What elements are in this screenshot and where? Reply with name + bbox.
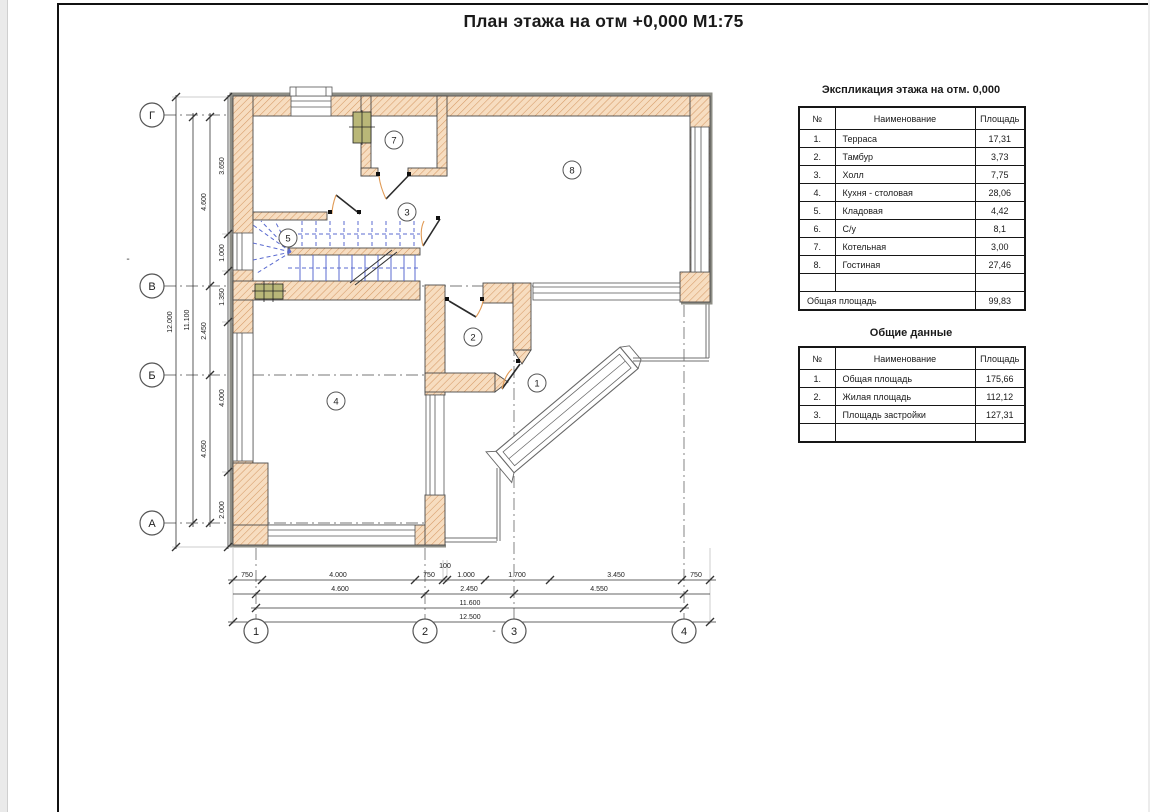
cell-name: Терраса — [835, 130, 975, 148]
cell-num: 8. — [799, 256, 835, 274]
cell-area: 4,42 — [975, 202, 1025, 220]
cell-name: Холл — [835, 166, 975, 184]
table-total-row: Общая площадь 99,83 — [799, 292, 1025, 311]
table-row: 2.Жилая площадь112,12 — [799, 388, 1025, 406]
svg-text:4: 4 — [333, 397, 338, 408]
table-row — [799, 274, 1025, 292]
windows — [233, 87, 709, 545]
cell-area: 127,31 — [975, 406, 1025, 424]
svg-text:5: 5 — [285, 234, 290, 245]
cell-area — [975, 424, 1025, 443]
cell-num: 1. — [799, 130, 835, 148]
svg-text:8: 8 — [569, 166, 574, 177]
svg-text:4.600: 4.600 — [331, 586, 349, 593]
svg-text:2.000: 2.000 — [219, 501, 226, 519]
table-row: 1.Терраса17,31 — [799, 130, 1025, 148]
header-name: Наименование — [835, 347, 975, 370]
svg-text:12.500: 12.500 — [459, 614, 481, 621]
svg-text:4.600: 4.600 — [201, 193, 208, 211]
drawing-sheet: План этажа на отм +0,000 М1:75 — [0, 0, 1150, 812]
table-row: 6.С/у8,1 — [799, 220, 1025, 238]
cell-num: 4. — [799, 184, 835, 202]
terrace-outline — [445, 302, 709, 542]
header-num: № — [799, 347, 835, 370]
cell-num: 3. — [799, 406, 835, 424]
svg-text:А: А — [148, 518, 156, 530]
cell-area — [975, 274, 1025, 292]
svg-text:2.450: 2.450 — [201, 322, 208, 340]
cell-name: Кухня - столовая — [835, 184, 975, 202]
cell-name: Гостиная — [835, 256, 975, 274]
walls — [233, 96, 710, 545]
cell-area: 17,31 — [975, 130, 1025, 148]
svg-text:1.000: 1.000 — [457, 572, 475, 579]
table-row: 2.Тамбур3,73 — [799, 148, 1025, 166]
svg-text:3: 3 — [404, 208, 409, 219]
explication-table: № Наименование Площадь 1.Терраса17,31 2.… — [798, 106, 1026, 311]
cell-num: 6. — [799, 220, 835, 238]
svg-text:-: - — [492, 626, 495, 637]
total-label: Общая площадь — [799, 292, 975, 311]
axis-bubbles-left: Г В Б А — [140, 103, 164, 535]
header-num: № — [799, 107, 835, 130]
cell-area: 3,73 — [975, 148, 1025, 166]
table-header-row: № Наименование Площадь — [799, 107, 1025, 130]
svg-text:1: 1 — [253, 626, 259, 638]
table-row: 3.Холл7,75 — [799, 166, 1025, 184]
svg-text:1.000: 1.000 — [219, 244, 226, 262]
cell-name — [835, 424, 975, 443]
svg-text:4: 4 — [681, 626, 687, 638]
cell-num — [799, 274, 835, 292]
svg-text:11.600: 11.600 — [460, 600, 481, 607]
svg-text:4.000: 4.000 — [219, 389, 226, 407]
cell-num: 1. — [799, 370, 835, 388]
svg-text:1.350: 1.350 — [219, 288, 226, 306]
svg-text:Г: Г — [149, 110, 155, 122]
svg-text:4.050: 4.050 — [201, 440, 208, 458]
cell-area: 28,06 — [975, 184, 1025, 202]
cell-name: Общая площадь — [835, 370, 975, 388]
svg-text:1.700: 1.700 — [508, 572, 526, 579]
cell-num: 2. — [799, 388, 835, 406]
header-name: Наименование — [835, 107, 975, 130]
cell-name: Тамбур — [835, 148, 975, 166]
svg-text:750: 750 — [423, 572, 435, 579]
svg-text:12.000: 12.000 — [167, 311, 174, 333]
table-row: 8.Гостиная27,46 — [799, 256, 1025, 274]
explication-title: Экспликация этажа на отм. 0,000 — [798, 84, 1024, 96]
table-row: 3.Площадь застройки127,31 — [799, 406, 1025, 424]
cell-name: Котельная — [835, 238, 975, 256]
entrance-ramp — [486, 337, 648, 482]
dimension-lines-left: 3.650 1.000 1.350 4.000 2.000 4.600 2.45… — [167, 93, 233, 551]
outer-wall-band — [231, 94, 711, 546]
svg-text:7: 7 — [391, 136, 396, 147]
svg-text:4.000: 4.000 — [329, 572, 347, 579]
table-row — [799, 424, 1025, 443]
svg-text:100: 100 — [439, 563, 451, 570]
table-row: 4.Кухня - столовая28,06 — [799, 184, 1025, 202]
general-title: Общие данные — [798, 327, 1024, 339]
cell-name: Жилая площадь — [835, 388, 975, 406]
svg-text:3.450: 3.450 — [607, 572, 625, 579]
svg-text:2.450: 2.450 — [460, 586, 478, 593]
svg-text:750: 750 — [690, 572, 702, 579]
total-value: 99,83 — [975, 292, 1025, 311]
table-row: 7.Котельная3,00 — [799, 238, 1025, 256]
cell-name: Кладовая — [835, 202, 975, 220]
cell-area: 175,66 — [975, 370, 1025, 388]
svg-text:3.650: 3.650 — [219, 157, 226, 175]
svg-text:3: 3 — [511, 626, 517, 638]
svg-text:750: 750 — [241, 572, 253, 579]
cell-area: 112,12 — [975, 388, 1025, 406]
table-header-row: № Наименование Площадь — [799, 347, 1025, 370]
svg-text:2: 2 — [422, 626, 428, 638]
svg-text:-: - — [126, 254, 129, 265]
cell-area: 8,1 — [975, 220, 1025, 238]
cell-area: 3,00 — [975, 238, 1025, 256]
cell-name: Площадь застройки — [835, 406, 975, 424]
general-table: № Наименование Площадь 1.Общая площадь17… — [798, 346, 1026, 443]
cell-name: С/у — [835, 220, 975, 238]
cell-area: 7,75 — [975, 166, 1025, 184]
doors — [328, 172, 520, 389]
svg-text:1: 1 — [534, 379, 539, 390]
svg-text:Б: Б — [148, 370, 155, 382]
cell-num: 5. — [799, 202, 835, 220]
table-row: 5.Кладовая4,42 — [799, 202, 1025, 220]
cell-name — [835, 274, 975, 292]
header-area: Площадь — [975, 347, 1025, 370]
svg-text:11.100: 11.100 — [184, 309, 191, 330]
svg-text:2: 2 — [470, 333, 475, 344]
table-row: 1.Общая площадь175,66 — [799, 370, 1025, 388]
header-area: Площадь — [975, 107, 1025, 130]
cell-num: 3. — [799, 166, 835, 184]
cell-num — [799, 424, 835, 443]
svg-text:4.550: 4.550 — [590, 586, 608, 593]
dimension-lines-bottom: 750 4.000 750 100 1.000 1.700 3.450 750 … — [228, 548, 716, 626]
axis-bubbles-bottom: 1 2 3 4 — [244, 619, 696, 643]
cell-area: 27,46 — [975, 256, 1025, 274]
svg-text:В: В — [148, 281, 155, 293]
cell-num: 7. — [799, 238, 835, 256]
cell-num: 2. — [799, 148, 835, 166]
